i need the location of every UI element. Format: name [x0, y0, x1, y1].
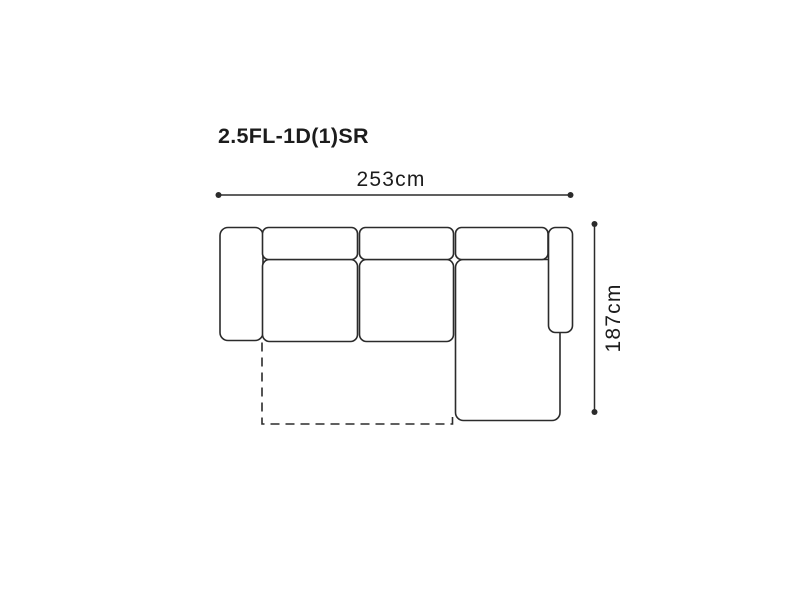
- back-cushion-1: [263, 228, 358, 260]
- seat-cushion-1: [263, 260, 358, 342]
- sofa-dimension-diagram: 2.5FL-1D(1)SR 253cm 187cm: [0, 0, 800, 600]
- back-cushion-2: [360, 228, 454, 260]
- width-dimension-label: 253cm: [356, 168, 425, 191]
- width-dimension-right-dot: [568, 192, 574, 198]
- sofa-outline: [220, 228, 573, 425]
- right-armrest: [549, 228, 573, 333]
- seat-cushion-2: [360, 260, 454, 342]
- diagram-title: 2.5FL-1D(1)SR: [218, 124, 369, 148]
- width-dimension-left-dot: [216, 192, 222, 198]
- diagram-canvas: 2.5FL-1D(1)SR 253cm 187cm: [0, 0, 800, 600]
- depth-dimension-label: 187cm: [602, 283, 625, 352]
- pull-out-extension-dashed-outline: [262, 343, 453, 425]
- depth-dimension-bottom-dot: [592, 409, 598, 415]
- back-cushion-3: [456, 228, 549, 260]
- depth-dimension-top-dot: [592, 221, 598, 227]
- left-armrest: [220, 228, 263, 341]
- chaise-lounge: [456, 260, 561, 421]
